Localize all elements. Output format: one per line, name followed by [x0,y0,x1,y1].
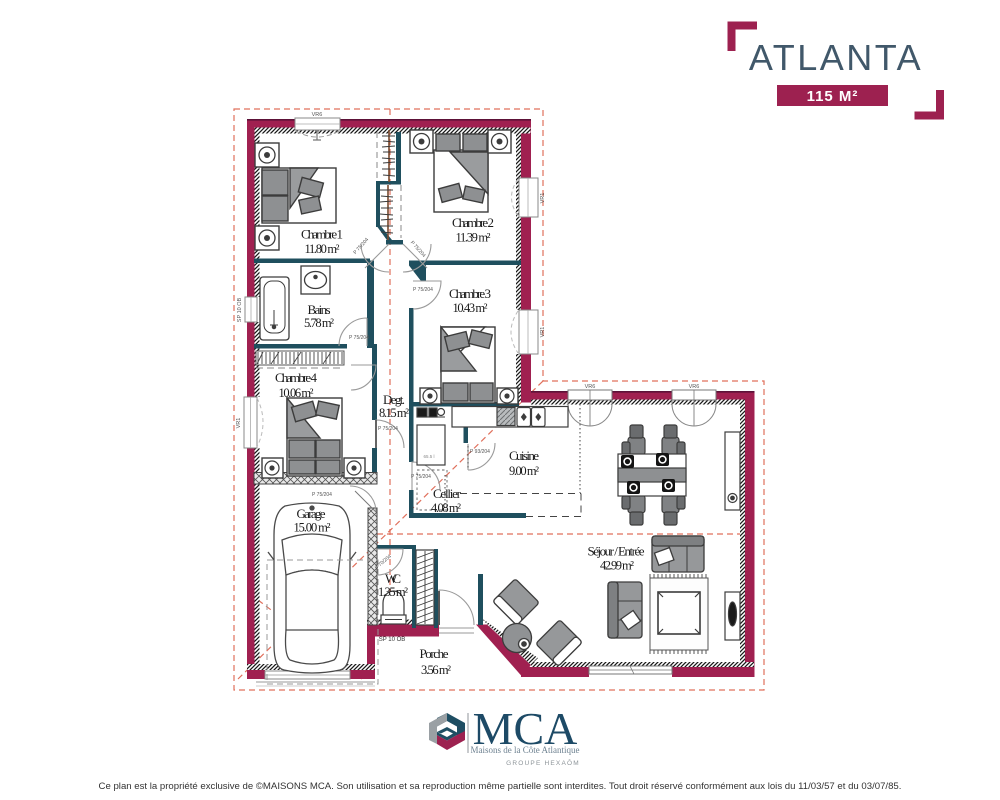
svg-text:9.00 m²: 9.00 m² [509,464,539,478]
svg-text:P 75/204: P 75/204 [378,426,398,432]
svg-text:Porche: Porche [420,646,449,661]
svg-text:Cellier: Cellier [433,486,462,501]
svg-text:VR6: VR6 [689,384,700,390]
svg-text:10.43 m²: 10.43 m² [453,301,488,315]
svg-text:Degt.: Degt. [383,392,405,407]
svg-text:P 75/204: P 75/204 [312,492,332,498]
svg-text:4.08 m²: 4.08 m² [431,501,461,515]
svg-text:15.00 m²: 15.00 m² [294,521,331,535]
svg-text:P 75/204: P 75/204 [413,287,433,293]
svg-text:11.39 m²: 11.39 m² [456,231,491,245]
svg-text:Maisons de la Côte Atlantique: Maisons de la Côte Atlantique [471,745,580,755]
svg-text:115 M²: 115 M² [807,88,859,105]
svg-text:5.78 m²: 5.78 m² [304,316,334,330]
svg-text:P 75/204: P 75/204 [411,474,431,480]
svg-text:P 93/204: P 93/204 [470,449,490,455]
svg-text:8.15 m²: 8.15 m² [379,406,409,420]
svg-text:VR6: VR6 [585,384,596,390]
svg-text:Ce plan est la propriété exclu: Ce plan est la propriété exclusive de ©M… [99,781,902,792]
svg-text:Séjour / Entrée: Séjour / Entrée [588,544,645,559]
svg-text:SP 10 OB: SP 10 OB [379,637,406,643]
svg-text:VR1: VR1 [540,327,546,338]
svg-text:Bains: Bains [308,302,331,317]
svg-text:Garage: Garage [297,506,326,521]
svg-text:Chambre 2: Chambre 2 [452,215,494,230]
svg-text:Chambre 1: Chambre 1 [301,227,343,242]
svg-text:WC: WC [385,571,401,586]
svg-text:65.5 l: 65.5 l [423,454,434,459]
svg-text:P 75/204: P 75/204 [409,240,427,259]
svg-text:GROUPE HEXAÔM: GROUPE HEXAÔM [506,758,580,767]
svg-text:3.56 m²: 3.56 m² [421,663,451,677]
svg-text:SP 10 OB: SP 10 OB [237,297,243,322]
svg-text:Chambre 3: Chambre 3 [449,286,491,301]
svg-text:VR6: VR6 [312,112,323,118]
svg-text:Chambre 4: Chambre 4 [275,370,318,385]
svg-text:11.80 m²: 11.80 m² [305,242,340,256]
svg-text:10.06 m²: 10.06 m² [279,386,314,400]
svg-text:VR1: VR1 [540,193,546,204]
svg-text:Cuisine: Cuisine [509,448,539,463]
svg-text:42.99 m²: 42.99 m² [600,559,634,573]
svg-text:VR1: VR1 [236,418,242,429]
svg-text:P 75/204: P 75/204 [349,335,369,341]
svg-text:P 75/204: P 75/204 [352,237,370,256]
svg-text:ATLANTA: ATLANTA [749,37,923,78]
svg-text:1.35 m²: 1.35 m² [378,585,408,599]
